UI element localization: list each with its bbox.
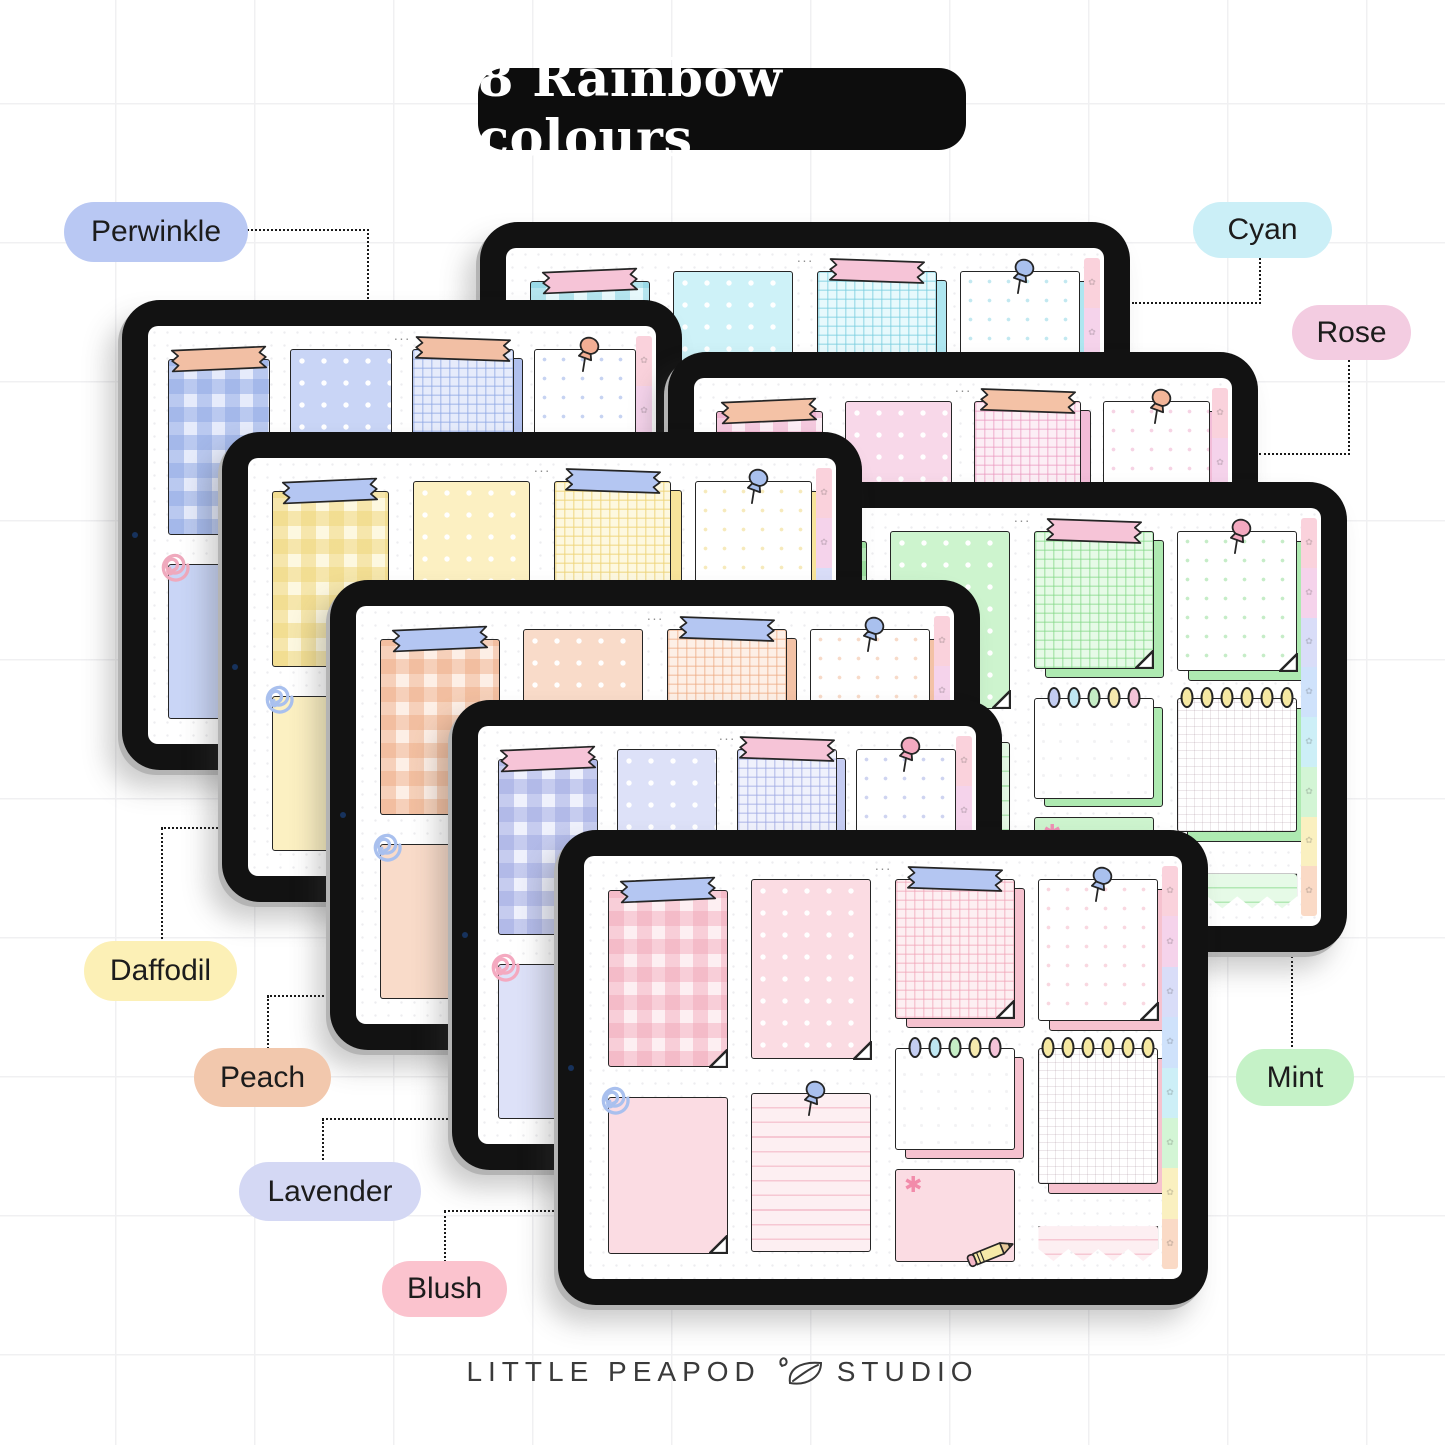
- note-dotted: [751, 879, 871, 1059]
- washi-tape-icon: [734, 735, 839, 763]
- ring: [1261, 687, 1274, 708]
- folded-corner-icon: [992, 690, 1011, 709]
- tab-segment: ✿: [1301, 667, 1317, 717]
- spiral-rings-icon: [908, 1037, 1001, 1058]
- tab-segment: ✿: [1162, 967, 1178, 1017]
- note-white-pinned: [1177, 531, 1297, 671]
- tab-segment: ✿: [1301, 767, 1317, 817]
- tab-segment: ✿: [1162, 1017, 1178, 1067]
- tab-segment: ✿: [1301, 717, 1317, 767]
- paperclip-icon: [257, 680, 304, 727]
- ring: [1127, 687, 1140, 708]
- ring: [1142, 1037, 1155, 1058]
- folded-corner-icon: [996, 1000, 1015, 1019]
- washi-tape-icon: [278, 477, 383, 506]
- notepad-spiral: [895, 1048, 1015, 1150]
- ring: [1042, 1037, 1055, 1058]
- tab-segment: ✿: [1162, 916, 1178, 966]
- washi-tape-icon: [537, 267, 642, 296]
- tab-segment: ✿: [636, 386, 652, 436]
- washi-tape-icon: [560, 467, 665, 495]
- washi-tape-icon: [717, 397, 822, 426]
- pushpin-icon: [1222, 516, 1260, 559]
- tab-segment: ✿: [1301, 618, 1317, 668]
- notepad-spiral: [1034, 698, 1154, 798]
- note-gingham: [608, 890, 728, 1068]
- tab-segment: ✿: [1301, 817, 1317, 867]
- rainbow-tab-strip: ✿✿✿✿✿✿✿✿: [1162, 866, 1178, 1269]
- folded-corner-icon: [709, 1049, 728, 1068]
- tab-segment: ✿: [1212, 388, 1228, 438]
- tab-segment: ✿: [1162, 1068, 1178, 1118]
- washi-tape-icon: [411, 335, 516, 363]
- ring: [1107, 687, 1120, 708]
- label-text: Blush: [407, 1272, 482, 1306]
- tab-segment: ✿: [636, 336, 652, 386]
- label-text: Daffodil: [110, 954, 211, 988]
- note-white-pinned: [1038, 879, 1158, 1021]
- tablet-screen: ···: [584, 856, 1182, 1279]
- pushpin-icon: [855, 614, 893, 657]
- folded-corner-icon: [853, 1041, 872, 1060]
- ring: [1082, 1037, 1095, 1058]
- peapod-leaf-icon: [773, 1356, 825, 1388]
- folded-corner-icon: [1140, 1002, 1159, 1021]
- note-square-flower: ✱: [895, 1169, 1015, 1262]
- title-badge: 8 Rainbow colours: [478, 68, 966, 150]
- tab-segment: ✿: [1084, 258, 1100, 308]
- washi-tape-icon: [902, 865, 1007, 893]
- menu-dots-icon: ···: [797, 253, 814, 267]
- ring: [1181, 687, 1194, 708]
- ring: [1102, 1037, 1115, 1058]
- ring: [1281, 687, 1294, 708]
- tablet-camera-icon: [232, 664, 238, 670]
- note-torn-strip: [1038, 1226, 1158, 1264]
- ring: [1062, 1037, 1075, 1058]
- pushpin-icon: [569, 334, 607, 377]
- tab-segment: ✿: [934, 616, 950, 666]
- folded-corner-icon: [1135, 650, 1154, 669]
- note-grid: [1034, 531, 1154, 669]
- ring: [928, 1037, 941, 1058]
- ring: [908, 1037, 921, 1058]
- notepad-grid-spiral: [1038, 1048, 1158, 1183]
- ring: [988, 1037, 1001, 1058]
- washi-tape-icon: [674, 615, 779, 643]
- spiral-rings-icon: [1181, 687, 1294, 708]
- menu-dots-icon: ···: [647, 611, 664, 625]
- brand-left: LITTLE PEAPOD: [466, 1356, 760, 1388]
- label-text: Cyan: [1227, 213, 1297, 247]
- tablet-blush: ···: [558, 830, 1208, 1305]
- brand-right: STUDIO: [837, 1356, 979, 1388]
- notepad-grid-spiral: [1177, 698, 1297, 832]
- washi-tape-icon: [1041, 517, 1146, 545]
- menu-dots-icon: ···: [1014, 513, 1031, 527]
- ring: [1067, 687, 1080, 708]
- menu-dots-icon: ···: [394, 331, 411, 345]
- tablet-camera-icon: [340, 812, 346, 818]
- label-peach: Peach: [194, 1048, 331, 1107]
- pencil-icon: [962, 1233, 1024, 1271]
- ring: [1122, 1037, 1135, 1058]
- note-plain-clipped: [608, 1097, 728, 1254]
- ring: [948, 1037, 961, 1058]
- menu-dots-icon: ···: [955, 383, 972, 397]
- menu-dots-icon: ···: [719, 731, 736, 745]
- paperclip-icon: [593, 1080, 640, 1127]
- folded-corner-icon: [1279, 653, 1298, 672]
- tab-segment: ✿: [1212, 438, 1228, 488]
- tablet-camera-icon: [462, 932, 468, 938]
- product-showcase: ···: [0, 0, 1445, 1445]
- note-lined-pinned: [751, 1093, 871, 1252]
- note-grid: [895, 879, 1015, 1019]
- tab-segment: ✿: [816, 468, 832, 518]
- tab-segment: ✿: [1084, 308, 1100, 358]
- pushpin-icon: [738, 466, 776, 509]
- pushpin-icon: [891, 734, 929, 777]
- spiral-rings-icon: [1042, 1037, 1155, 1058]
- ring: [968, 1037, 981, 1058]
- label-perwinkle: Perwinkle: [64, 202, 248, 262]
- label-rose: Rose: [1292, 305, 1411, 360]
- label-text: Rose: [1316, 316, 1386, 350]
- pushpin-icon: [1083, 865, 1121, 908]
- label-daffodil: Daffodil: [84, 941, 237, 1001]
- folded-corner-icon: [709, 1235, 728, 1254]
- washi-tape-icon: [387, 625, 492, 654]
- pushpin-icon: [1141, 386, 1179, 429]
- tab-segment: ✿: [1162, 1118, 1178, 1168]
- washi-tape-icon: [975, 387, 1080, 415]
- label-mint: Mint: [1236, 1049, 1354, 1106]
- page-title: 8 Rainbow colours: [478, 49, 966, 169]
- label-text: Perwinkle: [91, 215, 221, 249]
- tab-segment: ✿: [1162, 1168, 1178, 1218]
- tab-segment: ✿: [956, 786, 972, 836]
- pushpin-icon: [796, 1078, 834, 1121]
- ring: [1241, 687, 1254, 708]
- washi-tape-icon: [167, 345, 272, 374]
- paperclip-icon: [365, 828, 412, 875]
- label-lavender: Lavender: [239, 1162, 421, 1221]
- paperclip-icon: [483, 948, 530, 995]
- ring: [1221, 687, 1234, 708]
- tab-segment: ✿: [816, 518, 832, 568]
- flower-mark-icon: ✱: [904, 1175, 922, 1197]
- label-text: Peach: [220, 1061, 305, 1095]
- washi-tape-icon: [495, 745, 600, 774]
- label-text: Lavender: [267, 1175, 392, 1209]
- tab-segment: ✿: [1301, 866, 1317, 916]
- washi-tape-icon: [615, 876, 720, 905]
- menu-dots-icon: ···: [875, 861, 892, 875]
- washi-tape-icon: [824, 257, 929, 285]
- brand-footer: LITTLE PEAPOD STUDIO: [0, 1356, 1445, 1388]
- tablet-camera-icon: [132, 532, 138, 538]
- ring: [1047, 687, 1060, 708]
- rainbow-tab-strip: ✿✿✿✿✿✿✿✿: [1301, 518, 1317, 916]
- label-cyan: Cyan: [1193, 202, 1332, 258]
- tablet-camera-icon: [568, 1065, 574, 1071]
- tab-segment: ✿: [1162, 1219, 1178, 1269]
- paperclip-icon: [154, 548, 201, 595]
- pushpin-icon: [1005, 256, 1043, 299]
- label-text: Mint: [1267, 1061, 1324, 1095]
- tab-segment: ✿: [1301, 518, 1317, 568]
- tab-segment: ✿: [1301, 568, 1317, 618]
- tab-segment: ✿: [956, 736, 972, 786]
- spiral-rings-icon: [1047, 687, 1140, 708]
- tab-segment: ✿: [1162, 866, 1178, 916]
- menu-dots-icon: ···: [534, 463, 551, 477]
- label-blush: Blush: [382, 1261, 507, 1317]
- ring: [1201, 687, 1214, 708]
- ring: [1087, 687, 1100, 708]
